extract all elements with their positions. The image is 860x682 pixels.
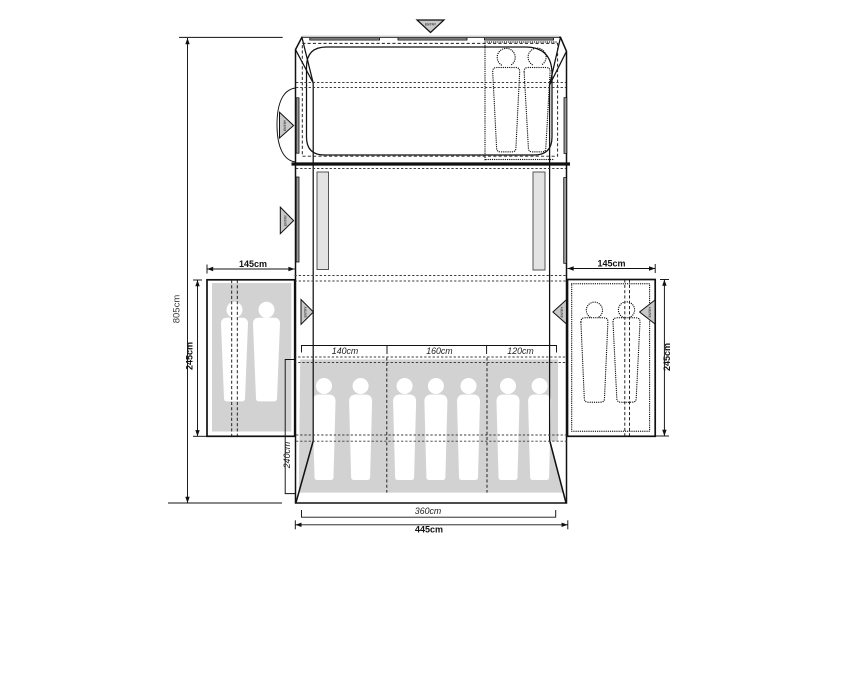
svg-text:245cm: 245cm: [184, 342, 194, 370]
svg-text:ENTRY: ENTRY: [283, 119, 287, 131]
svg-text:240cm: 240cm: [282, 442, 292, 469]
svg-text:145cm: 145cm: [597, 259, 625, 269]
svg-text:ENTRY: ENTRY: [648, 306, 652, 318]
svg-text:245cm: 245cm: [662, 343, 672, 371]
svg-text:445cm: 445cm: [415, 525, 443, 535]
svg-text:ENTRY: ENTRY: [560, 306, 564, 318]
svg-text:160cm: 160cm: [426, 346, 452, 356]
svg-text:ENTRY: ENTRY: [425, 23, 437, 27]
svg-text:120cm: 120cm: [507, 346, 533, 356]
svg-text:ENTRY: ENTRY: [304, 306, 308, 318]
svg-text:140cm: 140cm: [332, 346, 358, 356]
svg-text:805cm: 805cm: [171, 295, 182, 324]
svg-text:ENTRY: ENTRY: [283, 214, 287, 226]
svg-text:360cm: 360cm: [415, 506, 441, 516]
svg-text:145cm: 145cm: [239, 259, 267, 269]
